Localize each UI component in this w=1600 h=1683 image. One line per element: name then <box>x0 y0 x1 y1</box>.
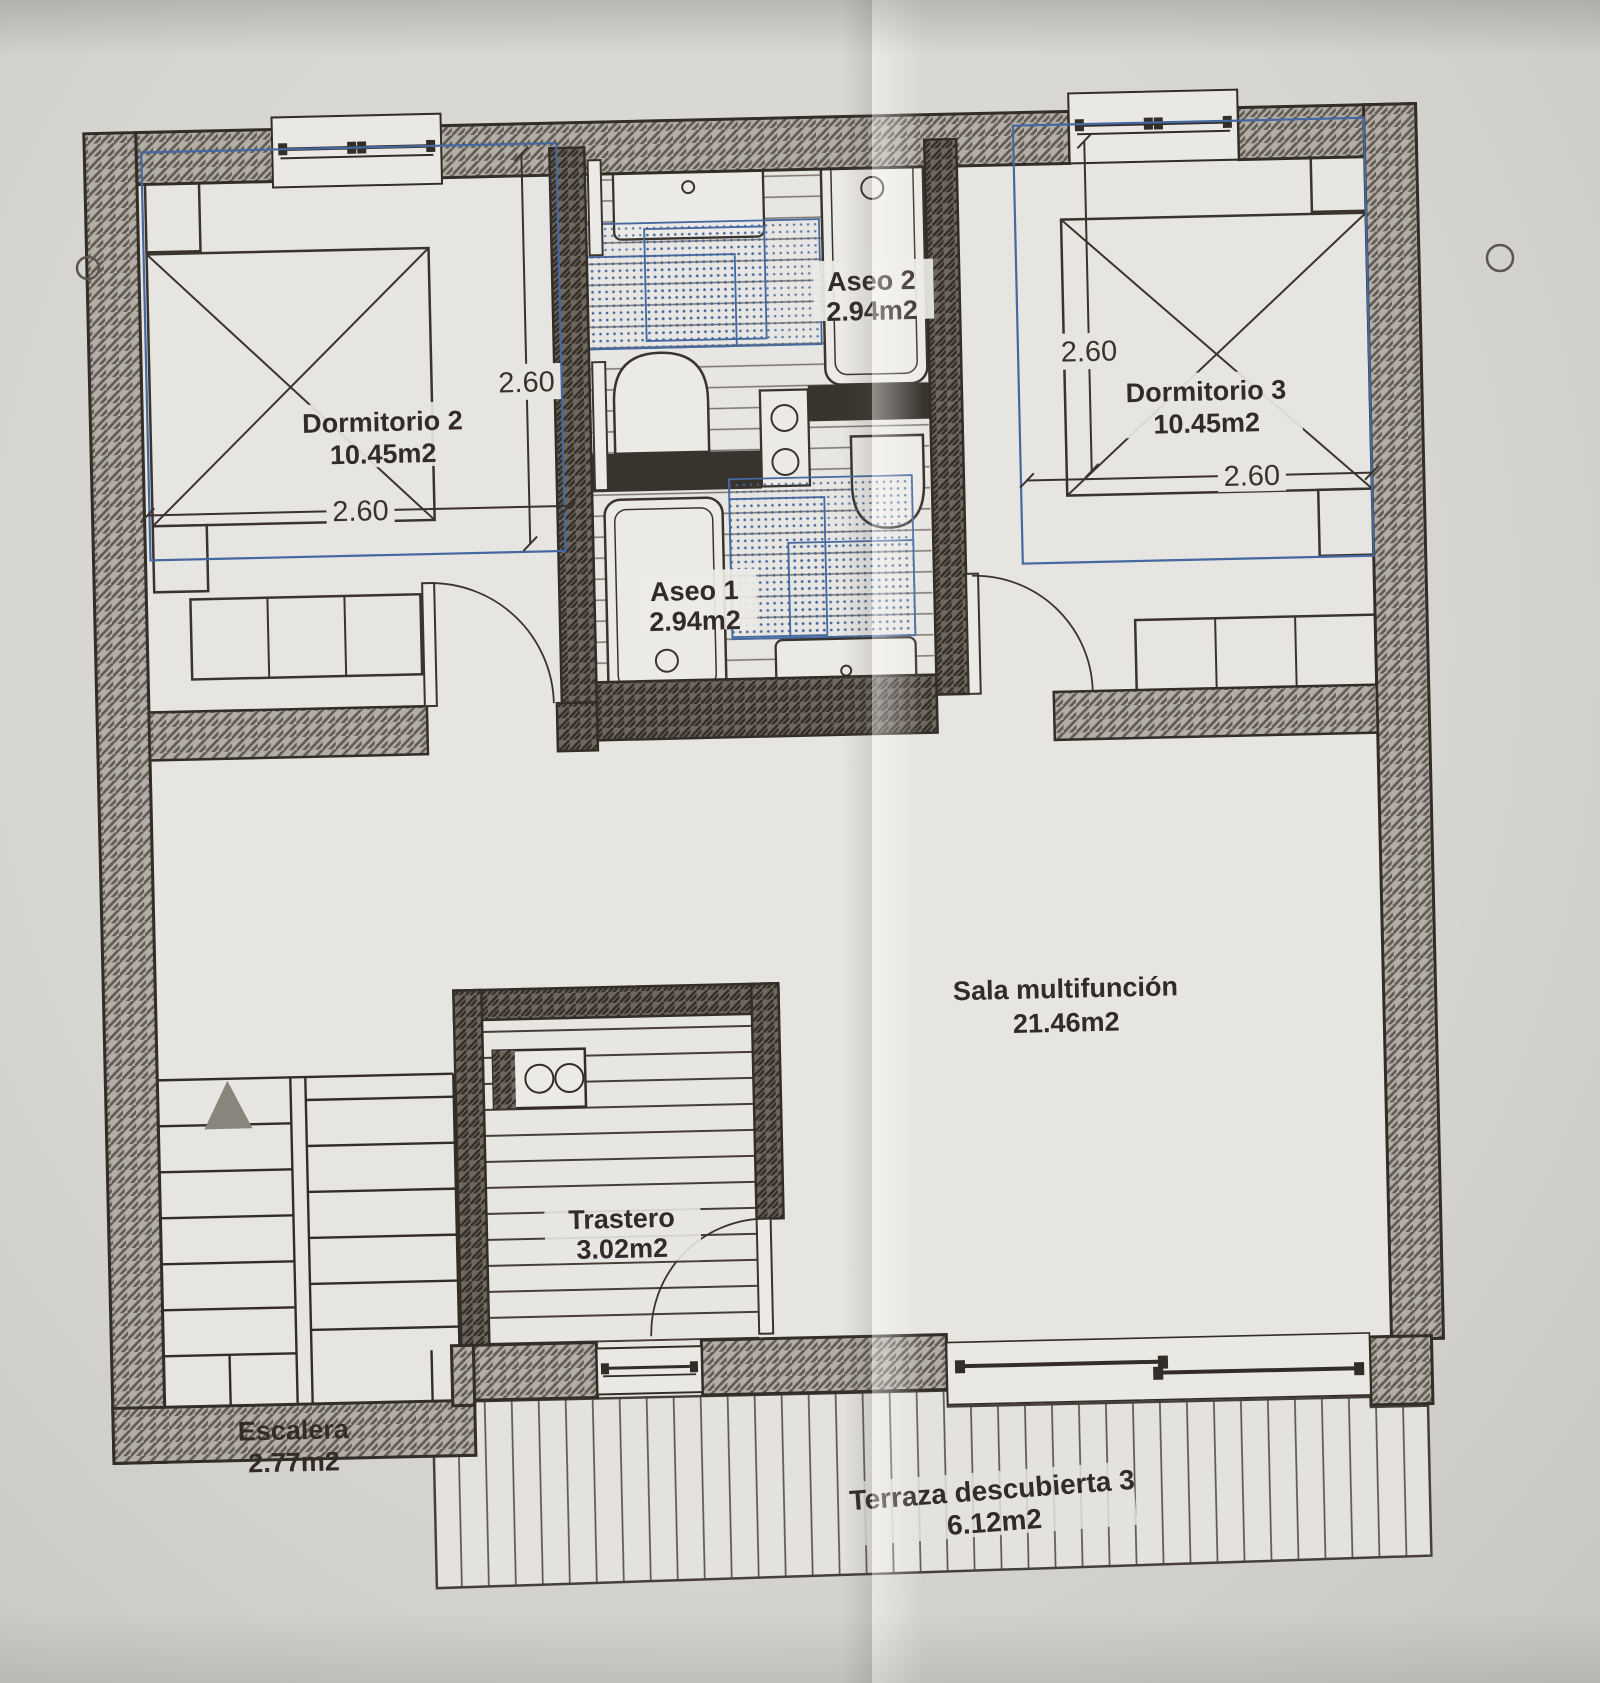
wall-dorm2-sala <box>149 706 428 760</box>
wall-trastero-right <box>751 983 783 1219</box>
floor-plan-svg: 2.60 2.60 2.60 2.60 Dormitorio 2 10.45m2… <box>0 0 1600 1683</box>
dimension-label: 2.60 <box>1060 335 1117 368</box>
floor-plan-photo: 2.60 2.60 2.60 2.60 Dormitorio 2 10.45m2… <box>0 0 1600 1683</box>
punch-hole <box>1487 245 1513 271</box>
door-leaf <box>422 583 437 706</box>
room-label: Aseo 1 <box>650 575 739 607</box>
building: 2.60 2.60 2.60 2.60 Dormitorio 2 10.45m2… <box>83 86 1448 1596</box>
wall-bottom <box>473 1342 597 1400</box>
room-label: Escalera <box>237 1414 350 1447</box>
wall-bottom <box>451 1345 474 1405</box>
door-leaf <box>757 1218 774 1333</box>
room-area-label: 2.94m2 <box>826 295 918 327</box>
room-label: Dormitorio 2 <box>302 405 463 439</box>
room-area-label: 2.77m2 <box>248 1446 340 1478</box>
wardrobe-symbol <box>190 594 422 679</box>
door-leaf <box>966 574 981 694</box>
room-area-label: 10.45m2 <box>330 438 437 470</box>
room-label: Sala multifunción <box>953 971 1179 1006</box>
toilet-symbol <box>613 352 709 454</box>
terrace-corner-pillar <box>1369 1336 1433 1405</box>
window-symbol <box>597 1346 703 1394</box>
nightstand-symbol <box>1318 489 1373 556</box>
wall-trastero-top <box>453 983 779 1020</box>
appliance-side <box>493 1050 516 1108</box>
wall-dorm3-sala <box>1054 685 1378 740</box>
bathroom-divider-wall <box>808 383 931 422</box>
nightstand-symbol <box>145 183 201 252</box>
wall-top <box>136 129 275 184</box>
room-area-label: 2.94m2 <box>649 605 741 637</box>
door-leaf <box>592 362 608 490</box>
shower-area <box>586 219 822 349</box>
wall-pillar <box>557 702 598 751</box>
room-label: Dormitorio 3 <box>1125 375 1286 409</box>
dimension-label: 2.60 <box>498 366 555 399</box>
wall-bottom <box>701 1335 947 1396</box>
room-area-label: 21.46m2 <box>1013 1007 1120 1039</box>
dimension-label: 2.60 <box>1223 460 1280 493</box>
sliding-door-symbol <box>946 1333 1370 1405</box>
door-leaf <box>588 160 603 255</box>
room-label: Aseo 2 <box>827 265 916 297</box>
window-symbol <box>1068 90 1239 164</box>
room-label: Trastero <box>568 1203 675 1235</box>
dimension-label: 2.60 <box>332 495 389 528</box>
room-area-label: 10.45m2 <box>1153 407 1260 439</box>
room-area-label: 3.02m2 <box>576 1233 668 1265</box>
window-symbol <box>271 114 442 188</box>
wall-baths-sala <box>596 675 937 741</box>
